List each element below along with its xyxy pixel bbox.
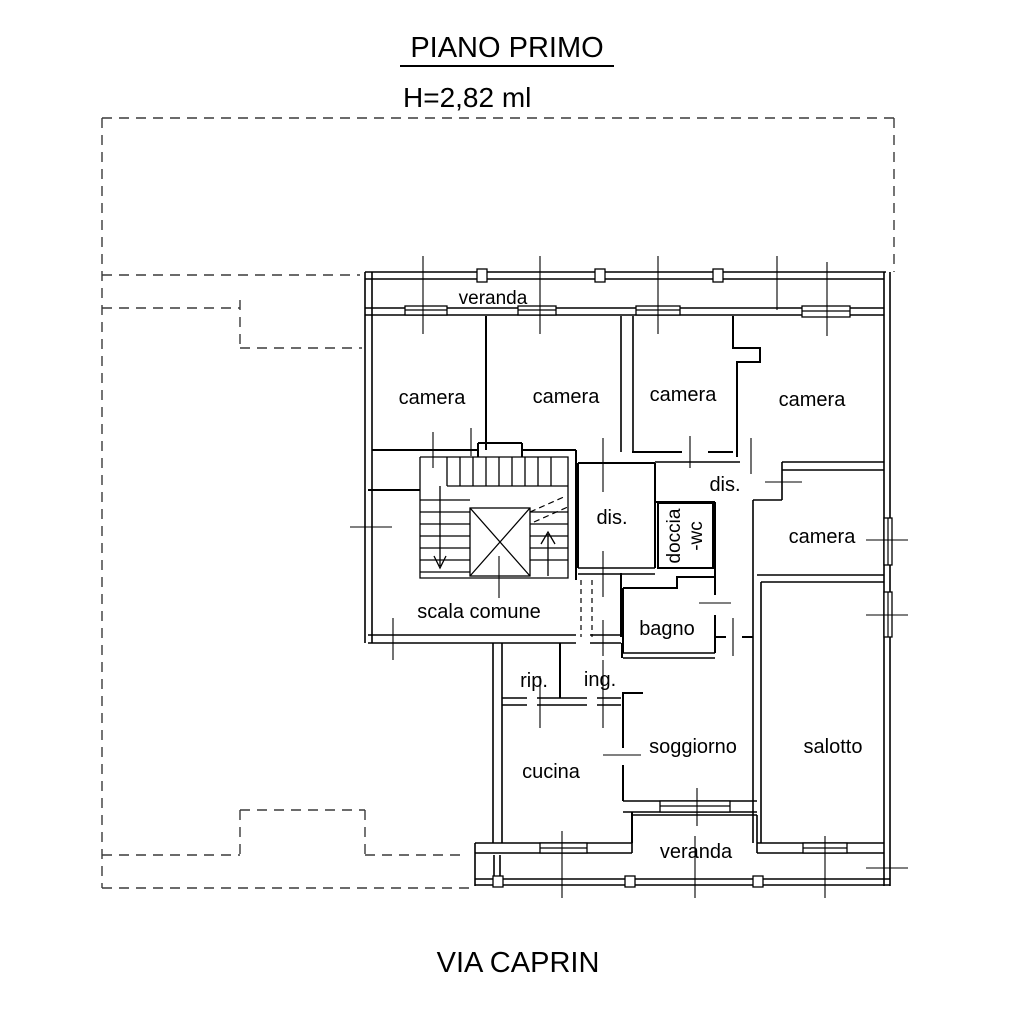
room-label-cucina: cucina [522,761,581,783]
stair-landing-dashed-door [581,580,592,637]
staircase [420,457,570,598]
room-label-dis1: dis. [596,507,627,529]
room-label-camera4: camera [779,389,847,411]
floor-plan-svg: PIANO PRIMO H=2,82 ml VIA CAPRIN veranda… [0,0,1024,1018]
elevator-cross-icon [470,508,530,576]
room-label-veranda-top: veranda [459,288,528,309]
room-label-camera-right: camera [789,526,857,548]
stair-up-arrow-icon [541,532,555,576]
room-label-doccia-wc-line2: -wc [686,521,707,551]
room-label-doccia-wc-line1: doccia [664,508,685,563]
lot-boundary-dashed [102,118,894,888]
room-label-bagno: bagno [639,618,695,640]
street-label: VIA CAPRIN [437,947,600,979]
room-label-ing: ing. [584,669,616,691]
room-label-soggiorno: soggiorno [649,736,737,758]
room-label-salotto: salotto [804,736,863,758]
room-label-dis2: dis. [709,474,740,496]
room-label-rip: rip. [520,670,548,692]
room-label-camera2: camera [533,386,601,408]
titles: PIANO PRIMO H=2,82 ml VIA CAPRIN [400,32,614,979]
exterior-walls [365,272,890,886]
stair-down-arrow-icon [434,486,446,568]
room-label-camera3: camera [650,384,718,406]
room-label-camera1: camera [399,387,467,409]
stair-break-lines [530,496,570,522]
floor-height-label: H=2,82 ml [403,82,531,113]
page-title: PIANO PRIMO [410,32,603,64]
room-label-veranda-bottom: veranda [660,841,733,863]
room-label-scala-comune: scala comune [417,601,540,623]
